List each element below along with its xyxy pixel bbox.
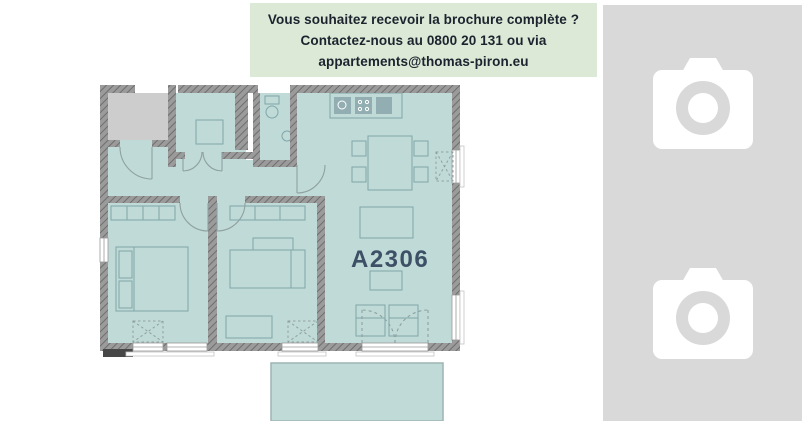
photo-placeholder-2[interactable] bbox=[653, 267, 753, 359]
listing-page: Vous souhaitez recevoir la brochure comp… bbox=[0, 0, 802, 421]
photo-placeholder-1[interactable] bbox=[653, 57, 753, 149]
photo-gallery-panel bbox=[603, 5, 802, 421]
camera-icon bbox=[653, 267, 753, 359]
floor-plan-drawing: A2306 bbox=[95, 80, 467, 421]
banner-line-2: Contactez-nous au 0800 20 131 ou via bbox=[250, 31, 597, 50]
common-hall bbox=[103, 93, 168, 140]
terrace bbox=[271, 363, 443, 421]
floor-plan-image: A2306 bbox=[95, 80, 467, 421]
camera-icon bbox=[653, 57, 753, 149]
unit-label: A2306 bbox=[351, 246, 429, 273]
brochure-banner: Vous souhaitez recevoir la brochure comp… bbox=[250, 3, 597, 77]
banner-line-3-email: appartements@thomas-piron.eu bbox=[250, 52, 597, 71]
banner-line-1: Vous souhaitez recevoir la brochure comp… bbox=[250, 10, 597, 29]
